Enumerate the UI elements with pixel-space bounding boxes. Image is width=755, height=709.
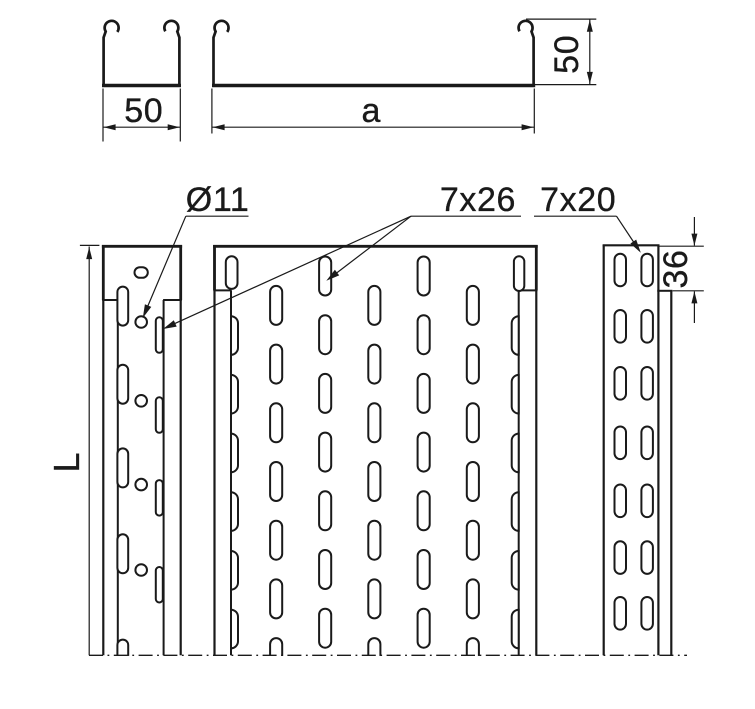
svg-text:7x26: 7x26 [440, 181, 516, 219]
svg-text:36: 36 [657, 249, 695, 288]
svg-text:7x20: 7x20 [540, 181, 616, 219]
svg-text:L: L [46, 452, 87, 472]
svg-text:50: 50 [124, 92, 163, 130]
svg-text:a: a [362, 92, 381, 130]
svg-text:50: 50 [548, 35, 586, 74]
svg-text:Ø11: Ø11 [186, 181, 250, 219]
